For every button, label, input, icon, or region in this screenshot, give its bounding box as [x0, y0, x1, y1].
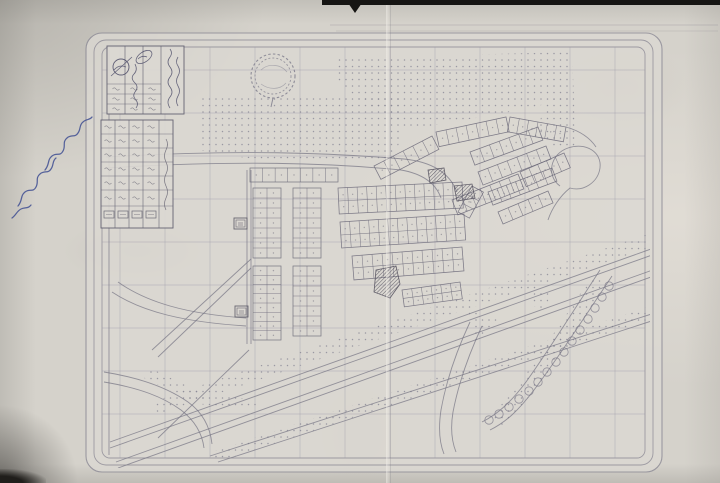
photo-dark-top-edge — [322, 0, 720, 5]
photographed-map-sheet — [0, 0, 720, 483]
fold-crease-line — [390, 5, 391, 483]
title-block — [107, 46, 184, 114]
handwritten-note — [12, 117, 92, 218]
fold-notch — [346, 0, 364, 13]
site-plan-drawing — [0, 0, 720, 483]
bottom-left-shadow — [0, 469, 46, 483]
legend-table — [101, 120, 173, 228]
